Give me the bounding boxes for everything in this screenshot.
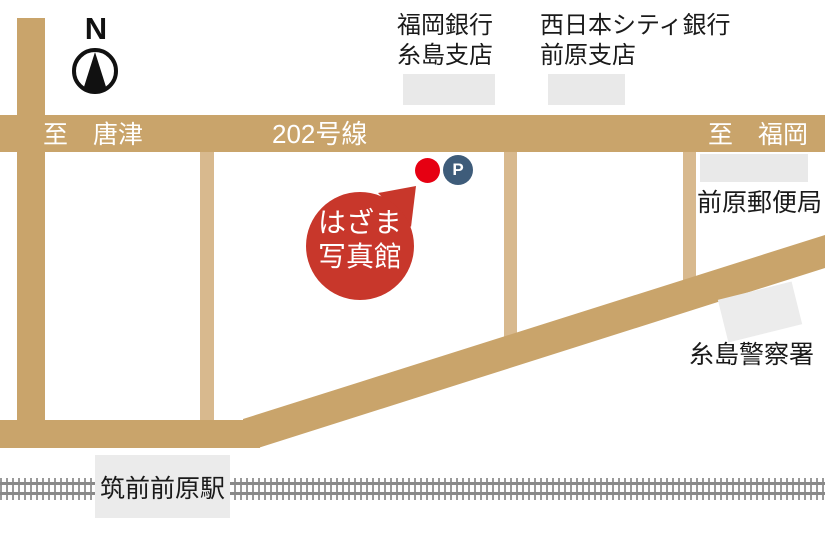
label-fukuoka-bank-line2: 糸島支店	[397, 41, 493, 71]
road-narrow-2	[504, 150, 517, 340]
label-fukuoka-bank-line1: 福岡銀行	[397, 11, 493, 41]
access-map: 筑前前原駅 N 至 唐津 202号線 至 福岡 福岡銀行 糸島支店 西日本シティ…	[0, 0, 825, 550]
parking-marker: P	[443, 155, 473, 185]
road-narrow-1	[200, 150, 214, 425]
shop-balloon: はざま 写真館	[306, 192, 414, 300]
label-fukuoka-bank: 福岡銀行 糸島支店	[397, 11, 493, 71]
label-police-station: 糸島警察署	[689, 340, 814, 370]
road-left-vertical	[17, 18, 45, 448]
building-fukuoka-bank	[403, 74, 495, 105]
compass-needle-icon	[83, 52, 107, 90]
label-nishinippon-bank-line2: 前原支店	[540, 41, 731, 71]
label-to-karatsu: 至 唐津	[43, 120, 143, 150]
station-box: 筑前前原駅	[95, 455, 230, 518]
shop-name-line2: 写真館	[306, 240, 414, 274]
compass-north-label: N	[80, 11, 112, 47]
road-bottom	[0, 420, 260, 448]
station-label: 筑前前原駅	[100, 469, 225, 505]
building-nishinippon-bank	[548, 74, 625, 105]
label-route-202: 202号線	[272, 119, 367, 150]
compass-icon	[72, 48, 118, 94]
label-nishinippon-bank: 西日本シティ銀行 前原支店	[540, 11, 731, 71]
label-post-office: 前原郵便局	[697, 188, 822, 218]
label-to-fukuoka: 至 福岡	[708, 120, 808, 150]
shop-name-line1: はざま	[306, 206, 414, 240]
road-narrow-3	[683, 150, 696, 285]
building-post-office	[700, 154, 808, 182]
shop-location-marker	[415, 158, 440, 183]
label-nishinippon-bank-line1: 西日本シティ銀行	[540, 11, 731, 41]
parking-label: P	[452, 160, 463, 180]
